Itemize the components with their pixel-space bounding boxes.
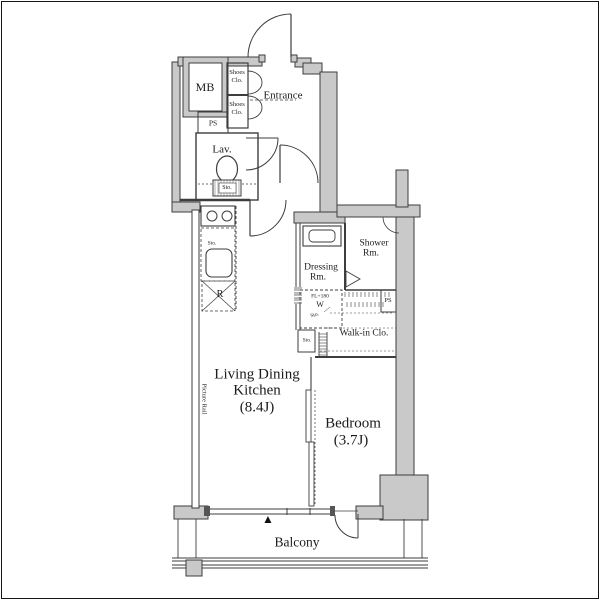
wall-left-thin: [192, 210, 199, 508]
label-shoes-1a: Shoes: [229, 70, 245, 77]
label-lavatory: Lav.: [212, 145, 231, 156]
entrance-door-arc: [248, 14, 291, 57]
partition-panel-1: [306, 390, 311, 442]
entrance-door-jamb-right: [291, 55, 297, 62]
floorplan: MB PS Shoes Clo. Shoes Clo. Entrance Lav…: [0, 0, 600, 600]
label-meter-box: MB: [196, 81, 215, 93]
partition-panel-2: [309, 442, 314, 506]
ldk-door-arc: [250, 200, 286, 236]
wall-entrance-step-b: [303, 63, 322, 74]
label-living-2: Kitchen: [233, 384, 280, 399]
label-laundry-fl: FL+180: [311, 294, 329, 300]
label-living-1: Living Dining: [214, 368, 299, 383]
wall-right-upper: [320, 72, 337, 212]
kitchen-sink: [206, 249, 232, 277]
wall-left-upper: [172, 62, 180, 212]
label-shoes-1b: Clo.: [231, 78, 242, 85]
label-storage-kitchen: Sto.: [208, 241, 217, 247]
label-refrigerator: R: [217, 290, 224, 300]
hanger-rail-marks-row1: [345, 292, 389, 297]
label-storage-hall: Sto.: [303, 338, 312, 344]
hall-door-arc: [280, 145, 318, 183]
label-walkin-closet: Walk-in Clo.: [340, 329, 389, 339]
label-ps-lower: PS: [384, 298, 391, 305]
balcony-rail-post: [186, 560, 202, 576]
shoes-closet-door-arc-2: [248, 96, 262, 119]
shoes-closet-door-arc-1: [248, 71, 262, 94]
label-dressing-2: Rm.: [310, 273, 326, 283]
washer-storage-tick: [324, 307, 330, 312]
kitchen-stove: [201, 206, 235, 226]
label-living-3: (8.4J): [240, 401, 275, 416]
label-laundry-w: W: [316, 301, 324, 309]
label-shower-2: Rm.: [363, 249, 379, 259]
label-entrance: Entrance: [263, 91, 302, 102]
direction-triangle-marker: ▲: [262, 513, 274, 525]
wall-ps-stub: [396, 170, 408, 207]
label-ps-upper: PS: [209, 119, 217, 127]
label-balcony: Balcony: [275, 535, 320, 549]
label-shoes-2b: Clo.: [231, 110, 242, 117]
window-end-block-left: [204, 506, 210, 516]
wall-bottom-right: [356, 506, 383, 519]
label-bedroom: Bedroom: [325, 417, 381, 432]
wall-right-main: [396, 217, 414, 475]
toilet: [217, 156, 238, 182]
vanity-sink: [309, 230, 335, 242]
label-picture-rail: Picture Rail: [200, 384, 207, 415]
window-end-block-right: [330, 506, 335, 516]
hanger-rail-marks-row2: [347, 302, 383, 307]
label-shoes-2a: Shoes: [229, 102, 245, 109]
balcony-door-arc: [335, 515, 358, 538]
walkin-sliding-door-hatch: [319, 334, 327, 355]
wall-right-column: [380, 475, 428, 520]
shower-folding-door: [346, 271, 360, 287]
entrance-door-jamb-left: [259, 55, 265, 62]
label-bedroom-size: (3.7J): [334, 434, 369, 449]
label-storage-toilet: Sto.: [222, 185, 232, 191]
wall-bottom-left: [174, 506, 208, 519]
lavatory-door-arc: [246, 138, 278, 170]
